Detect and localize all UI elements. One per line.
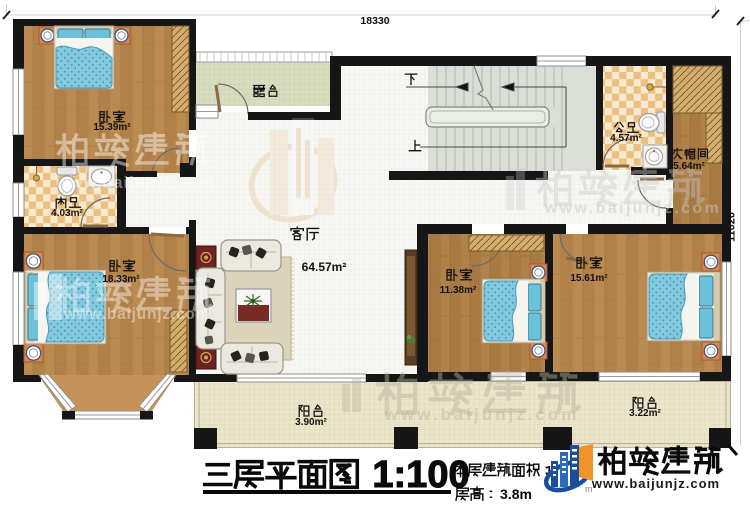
svg-text:5.64m²: 5.64m² [673,161,705,172]
svg-text:3.8m: 3.8m [500,486,532,502]
svg-text:1:100: 1:100 [372,454,469,496]
svg-text:3.22m²: 3.22m² [629,408,661,419]
svg-text:11.38m²: 11.38m² [440,285,477,296]
svg-text:11020: 11020 [726,212,738,242]
svg-text:64.57m²: 64.57m² [302,260,347,274]
svg-text:www.baijunjz.com: www.baijunjz.com [384,405,580,424]
svg-text:18330: 18330 [360,15,389,27]
svg-text:www.baijunjz.com: www.baijunjz.com [63,306,211,323]
svg-text:15.39m²: 15.39m² [93,122,131,133]
svg-text:4.03m²: 4.03m² [51,208,83,219]
svg-text:www.baijunjz.com: www.baijunjz.com [591,476,720,491]
svg-text:3.90m²: 3.90m² [295,417,327,428]
svg-text:www.baijunjz.com: www.baijunjz.com [544,200,722,217]
svg-text:4.57m²: 4.57m² [610,133,642,144]
svg-text:15.61m²: 15.61m² [570,273,608,284]
svg-text:www.baijunjz.com: www.baijunjz.com [55,174,214,192]
svg-text:18.33m²: 18.33m² [102,274,140,285]
